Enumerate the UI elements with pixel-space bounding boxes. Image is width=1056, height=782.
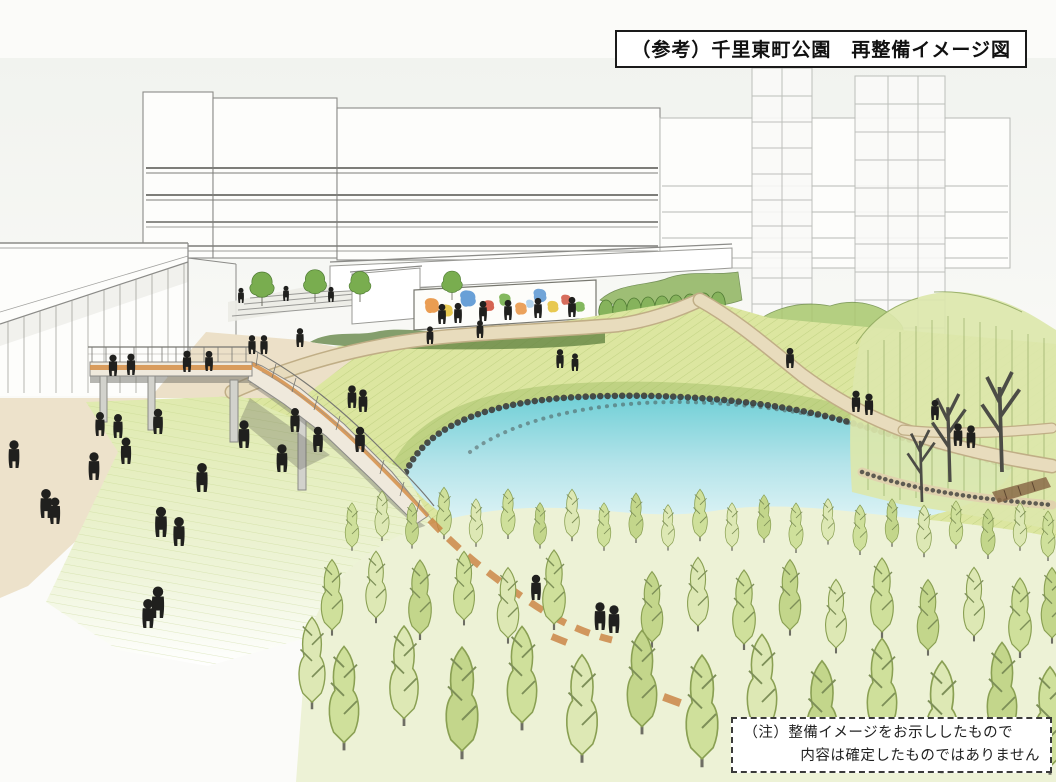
note-box: （注）整備イメージをお示ししたもので 内容は確定したものではありません xyxy=(731,717,1052,773)
note-line-2: 内容は確定したものではありません xyxy=(743,745,1040,767)
title-text: （参考）千里東町公園 再整備イメージ図 xyxy=(631,40,1011,61)
note-line-1: （注）整備イメージをお示ししたもので xyxy=(743,722,1040,744)
scanned-page: （参考）千里東町公園 再整備イメージ図 （注）整備イメージをお示ししたもので 内… xyxy=(0,0,1056,782)
park-illustration xyxy=(0,0,1056,782)
title-box: （参考）千里東町公園 再整備イメージ図 xyxy=(615,30,1027,68)
